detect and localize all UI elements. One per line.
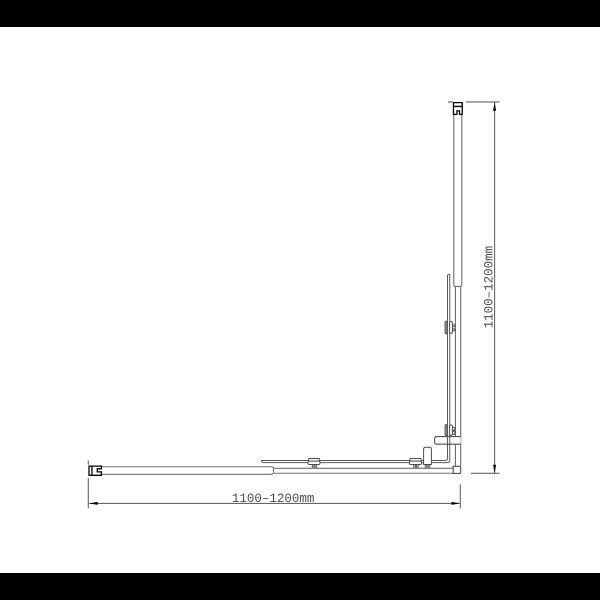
svg-text:1100–1200mm: 1100–1200mm	[232, 492, 315, 506]
svg-text:1100–1200mm: 1100–1200mm	[483, 246, 497, 329]
